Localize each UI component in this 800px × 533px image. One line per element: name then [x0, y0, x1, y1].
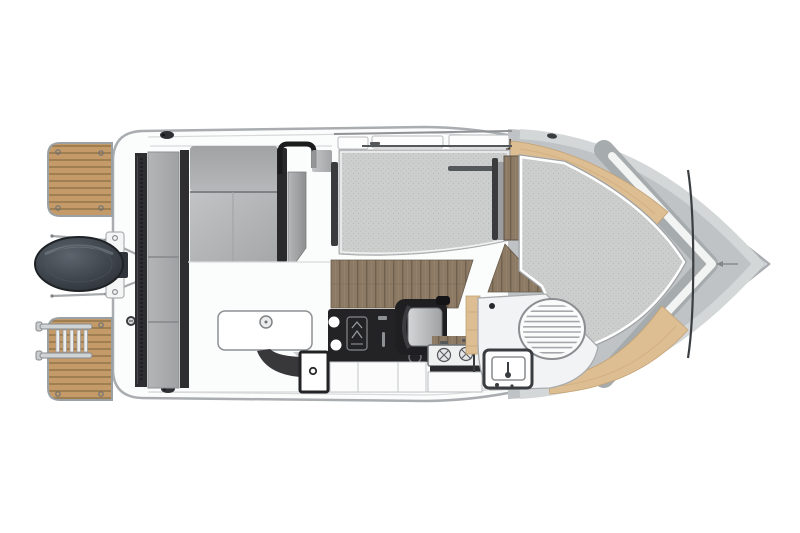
saloon-mat: Saloon dinette berth cushion	[339, 150, 510, 255]
walnut-divider	[504, 156, 521, 240]
sink-bowl	[329, 317, 340, 328]
cleat-port-icon: Mooring cleat (port aft)	[160, 131, 174, 139]
galley-cabinets: Galley cabinet fronts	[330, 362, 426, 392]
cockpit-side-seat	[288, 172, 306, 262]
aft-bench: Aft bench cushion	[148, 152, 179, 388]
sink-bowl	[331, 340, 342, 351]
step-panel: Cockpit step panel	[300, 352, 328, 392]
swim-platform-port: Swim platform (port)	[48, 143, 112, 216]
fuel-filler: Deck filler cap	[127, 317, 135, 325]
boat-floor-plan: Motor boat deck floor plan, top-down vie…	[0, 0, 800, 533]
bulkhead-strip	[492, 158, 498, 240]
grab-handle: Cabin grab handle	[448, 166, 496, 171]
door-track	[331, 162, 338, 246]
floor-plan-svg: Motor boat deck floor plan, top-down vie…	[0, 0, 800, 533]
bulkhead-strip-gray	[498, 162, 504, 240]
bench-edge-strip	[180, 150, 189, 388]
cockpit-backrest	[190, 146, 278, 192]
deck-hatch: Cockpit deck hatch with latch	[218, 311, 312, 350]
vanity-sink: Head vanity sink	[484, 350, 532, 388]
